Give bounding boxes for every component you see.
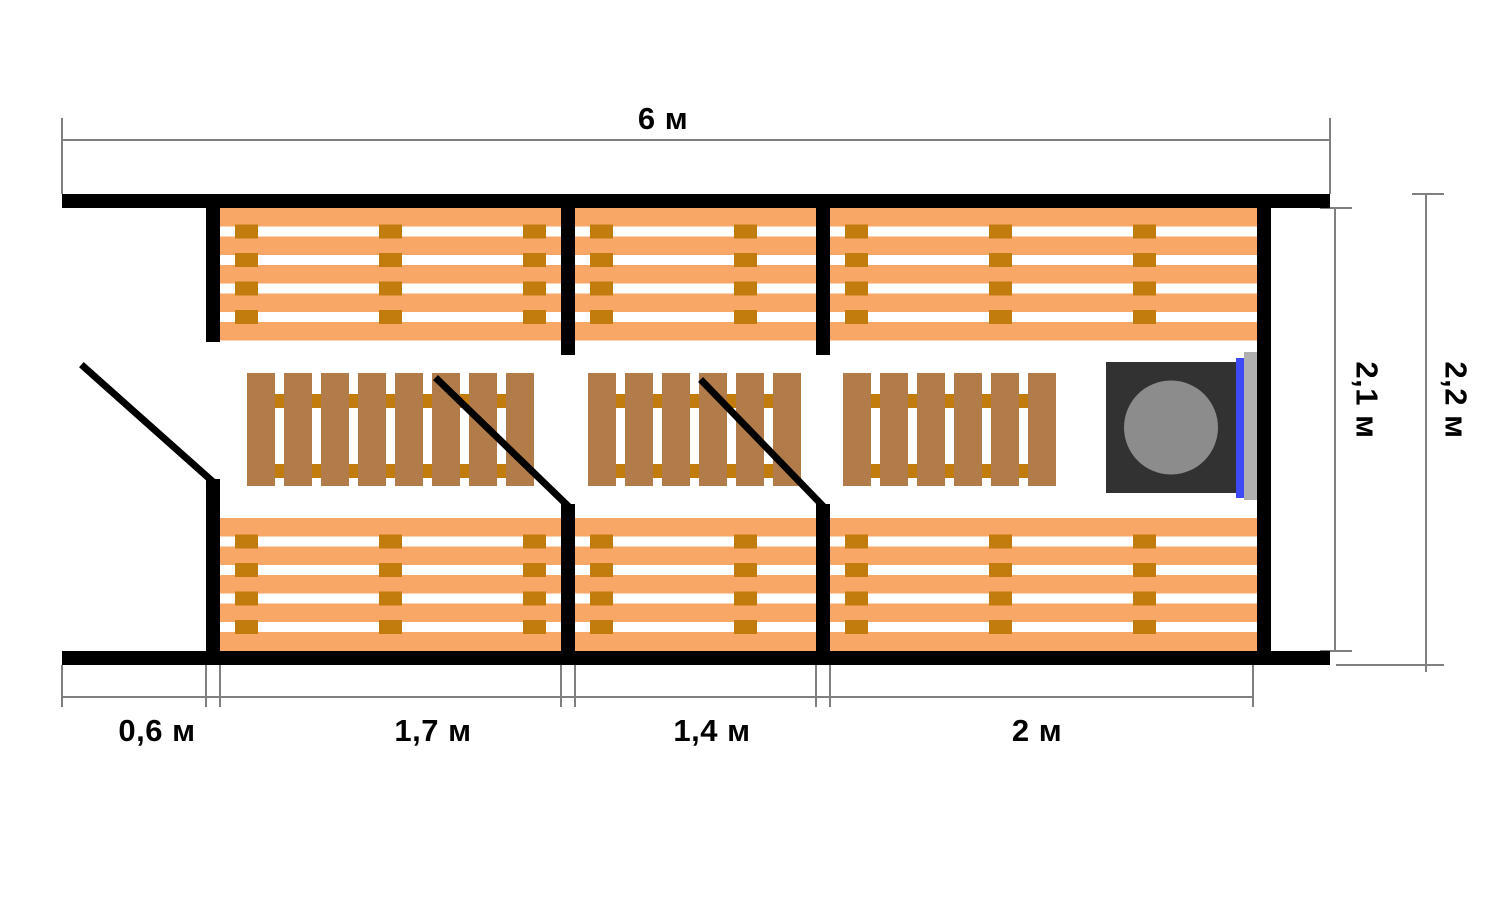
partition3-top-stub: [816, 208, 830, 355]
stove-heat-shield: [1244, 352, 1257, 500]
bench-bottom-room2: [575, 518, 816, 651]
dimension-label-room2: 1,4 м: [673, 713, 750, 748]
stove-lid-circle: [1124, 381, 1218, 475]
floor-grates: [247, 373, 1056, 486]
dimension-label-outer-height: 2,2 м: [1439, 361, 1474, 438]
partition1-top-stub: [206, 208, 220, 342]
bench-bottom-room3: [830, 518, 1257, 651]
dimension-label-room3: 2 м: [1012, 713, 1062, 748]
bench-bottom-room1: [220, 518, 561, 651]
partition3-bottom-stub: [816, 504, 830, 651]
stove: [1106, 352, 1257, 500]
dimension-label-total-length: 6 м: [638, 101, 688, 136]
bench-top-room3: [830, 208, 1257, 341]
floor-grate-room2: [588, 373, 801, 486]
door-swing-entrance: [84, 367, 211, 480]
floor-grate-room3: [843, 373, 1056, 486]
partition2-top-stub: [561, 208, 575, 355]
sauna-floor-plan: 6 м 0,6 м 1,7 м 1,4 м 2 м 2,1 м 2,2 м: [0, 0, 1496, 898]
bench-top-room1: [220, 208, 561, 341]
dimension-label-room1: 1,7 м: [394, 713, 471, 748]
dimension-label-porch: 0,6 м: [118, 713, 195, 748]
right-wall: [1257, 208, 1271, 651]
top-wall: [62, 194, 1330, 208]
partition1-bottom-stub: [206, 479, 220, 651]
stove-screen: [1236, 358, 1244, 498]
bench-top-room2: [575, 208, 816, 341]
partition2-bottom-stub: [561, 504, 575, 651]
floor-plan-drawing: 6 м 0,6 м 1,7 м 1,4 м 2 м 2,1 м 2,2 м: [0, 0, 1496, 898]
bottom-wall: [62, 651, 1330, 665]
dimension-label-inner-height: 2,1 м: [1350, 361, 1385, 438]
